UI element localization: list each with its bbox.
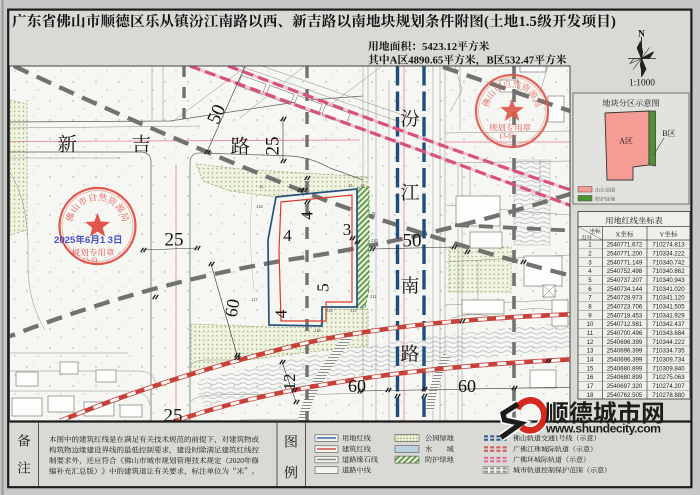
svg-text:2540723.706: 2540723.706 [607,304,643,311]
svg-text:710334.222: 710334.222 [652,251,685,258]
svg-text:J3: J3 [360,183,365,188]
svg-text:710344.222: 710344.222 [652,339,685,346]
svg-text:710334.735: 710334.735 [652,348,685,355]
svg-text:2540734.144: 2540734.144 [607,286,643,293]
svg-text:18: 18 [587,392,594,399]
svg-text:17: 17 [587,383,594,390]
svg-text:11: 11 [587,330,594,337]
svg-text:532.47: 532.47 [505,55,535,67]
svg-text:J17: J17 [251,297,258,302]
svg-text:B: B [662,129,667,138]
svg-text:2540718.453: 2540718.453 [607,312,643,319]
svg-text:4: 4 [271,309,290,318]
svg-text:710340.862: 710340.862 [652,268,685,275]
svg-text:15: 15 [587,365,594,372]
svg-text:J10: J10 [371,238,378,243]
svg-text:25: 25 [262,137,283,156]
svg-text:710341.929: 710341.929 [652,312,685,319]
svg-text:1 3: 1 3 [100,235,113,246]
svg-text:2540771.200: 2540771.200 [607,251,643,258]
svg-text:12: 12 [280,374,299,391]
svg-text:710340.742: 710340.742 [652,259,685,266]
svg-text:J18: J18 [256,204,263,209]
svg-text:6: 6 [85,235,90,246]
svg-text:2540696.399: 2540696.399 [607,357,643,364]
svg-text:2540696.399: 2540696.399 [607,339,643,346]
svg-text:25: 25 [165,229,184,250]
svg-text:(3-6): (3-6) [83,257,98,265]
svg-text:16: 16 [587,374,594,381]
svg-text:60: 60 [458,376,476,396]
svg-text:710275.063: 710275.063 [652,374,685,381]
svg-text:J9: J9 [371,211,376,216]
svg-text:2020: 2020 [229,456,244,465]
svg-text:J2: J2 [348,183,353,188]
svg-text:5: 5 [313,283,332,292]
svg-text:710343.684: 710343.684 [652,330,685,337]
svg-text:710309.734: 710309.734 [652,357,685,364]
svg-text:50: 50 [403,230,422,251]
svg-text:Y: Y [660,232,665,239]
svg-text:4: 4 [297,211,316,220]
svg-text:J1: J1 [259,184,264,189]
svg-text:2540712.981: 2540712.981 [607,321,643,328]
svg-text:2540728.973: 2540728.973 [607,295,643,302]
svg-text:60: 60 [348,376,366,396]
svg-text:(: ( [484,14,489,30]
svg-text:710342.437: 710342.437 [652,321,685,328]
svg-text:B: B [486,55,493,67]
svg-text:J16: J16 [314,328,321,333]
svg-text:): ) [611,14,616,30]
svg-text:710341.020: 710341.020 [652,286,685,293]
svg-text:2540762.505: 2540762.505 [607,392,643,399]
svg-text:2540771.149: 2540771.149 [607,259,643,266]
svg-text:J14: J14 [326,308,333,313]
svg-text:(3-6): (3-6) [500,132,515,140]
svg-text:12: 12 [587,339,594,346]
svg-text:710278.880: 710278.880 [652,392,685,399]
svg-text:2540737.207: 2540737.207 [607,277,643,284]
svg-text:60: 60 [221,297,244,318]
svg-text:N: N [638,29,645,39]
svg-text:2540700.496: 2540700.496 [607,330,643,337]
svg-text:710340.943: 710340.943 [652,277,685,284]
svg-text:2540680.899: 2540680.899 [607,365,643,372]
svg-text:4: 4 [283,226,292,245]
svg-text:2540752.498: 2540752.498 [607,268,643,275]
svg-text:A: A [390,55,398,67]
svg-text:710309.840: 710309.840 [652,365,685,372]
svg-text:10: 10 [587,321,594,328]
svg-text:X: X [616,232,621,239]
svg-text:2025: 2025 [54,235,76,246]
svg-text:1.5: 1.5 [519,14,537,30]
svg-text:710341.505: 710341.505 [652,304,685,311]
svg-text:J13: J13 [350,308,357,313]
svg-text:13: 13 [587,348,594,355]
svg-text:2540696.399: 2540696.399 [607,348,643,355]
svg-text:710274.207: 710274.207 [652,383,685,390]
svg-text:2540771.672: 2540771.672 [607,242,643,249]
svg-text:3: 3 [343,220,352,239]
svg-text:710341.120: 710341.120 [652,295,685,302]
svg-text:14: 14 [587,357,594,364]
svg-text:710274.813: 710274.813 [652,242,685,249]
svg-text:A: A [619,137,625,146]
svg-text:2540680.899: 2540680.899 [607,374,643,381]
svg-text:J11: J11 [370,294,377,299]
svg-text:1:1000: 1:1000 [629,79,655,89]
svg-text:1: 1 [555,435,559,443]
svg-text:www.shundecity.com: www.shundecity.com [545,422,661,436]
svg-text:5423.12: 5423.12 [422,41,457,53]
svg-text:2540697.320: 2540697.320 [607,383,643,390]
svg-text:4890.65: 4890.65 [408,55,443,67]
